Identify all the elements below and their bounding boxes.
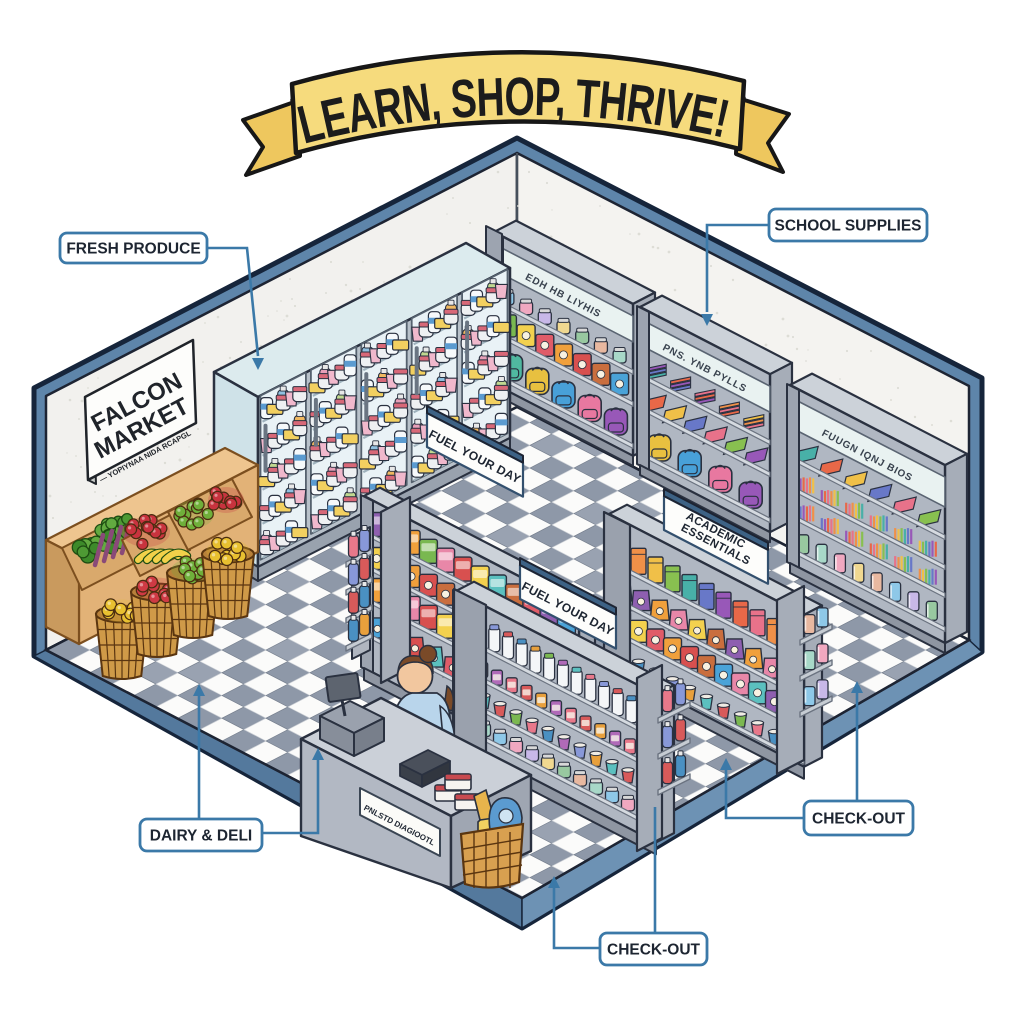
svg-text:DAIRY & DELI: DAIRY & DELI [150,828,252,845]
svg-text:CHECK-OUT: CHECK-OUT [812,811,906,828]
svg-text:SCHOOL SUPPLIES: SCHOOL SUPPLIES [775,218,922,235]
svg-text:FRESH PRODUCE: FRESH PRODUCE [66,241,200,258]
svg-text:CHECK-OUT: CHECK-OUT [607,942,701,959]
